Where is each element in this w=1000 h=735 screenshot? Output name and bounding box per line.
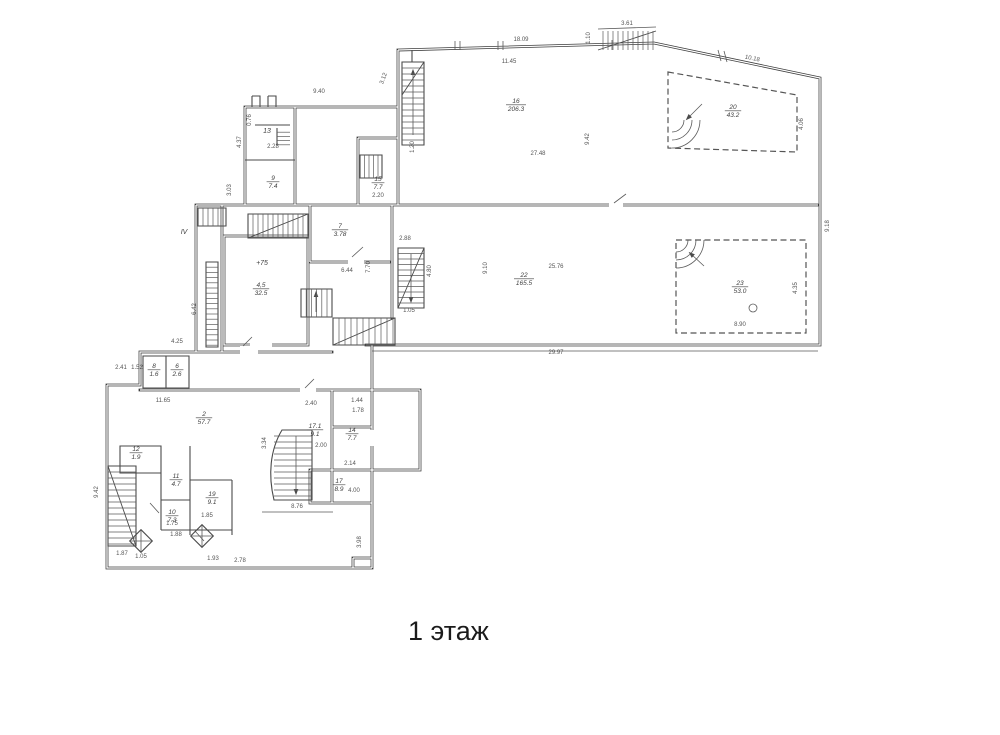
svg-text:9: 9 — [271, 175, 275, 182]
dim-label: 8.76 — [291, 504, 303, 510]
svg-text:10: 10 — [168, 509, 176, 516]
dim-label: 2.41 — [115, 365, 127, 371]
dim-label: 3.03 — [227, 184, 233, 196]
svg-text:8.9: 8.9 — [334, 486, 343, 493]
mark-labels-layer: IV13+75 — [181, 128, 271, 267]
dim-label: 4.80 — [427, 265, 433, 277]
svg-text:165.5: 165.5 — [516, 280, 533, 287]
dim-label: 9.42 — [585, 133, 591, 145]
dim-label: 2.14 — [344, 461, 356, 467]
svg-text:1.9: 1.9 — [131, 454, 140, 461]
svg-text:16: 16 — [512, 98, 520, 105]
dim-label: 4.06 — [799, 118, 805, 130]
plan-mark: 13 — [263, 128, 271, 135]
floor-plan-page: 16206.32043.222165.52353.073.784,532.597… — [0, 0, 1000, 735]
dim-label: 9.40 — [313, 89, 325, 95]
room-label: 22165.5 — [514, 272, 534, 287]
dim-label: 1.87 — [116, 551, 128, 557]
door-opening — [240, 346, 258, 358]
dim-label: 4.00 — [348, 488, 360, 494]
door-opening — [348, 256, 364, 268]
svg-text:23: 23 — [735, 280, 744, 287]
svg-text:19: 19 — [208, 491, 216, 498]
svg-text:17: 17 — [335, 478, 343, 485]
dim-label: 1.88 — [170, 532, 182, 538]
dim-label: 6.44 — [341, 268, 353, 274]
dim-label: 1.93 — [207, 556, 219, 562]
svg-text:1.6: 1.6 — [149, 371, 158, 378]
outer-walls — [107, 43, 820, 568]
svg-text:7.7: 7.7 — [347, 435, 356, 442]
dim-label: 1.05 — [135, 554, 147, 560]
dim-label: 1.10 — [586, 32, 592, 44]
svg-text:32.5: 32.5 — [255, 290, 268, 297]
plan-mark: IV — [181, 229, 189, 236]
dim-label: 2.28 — [267, 144, 279, 150]
floor-plan-svg: 16206.32043.222165.52353.073.784,532.597… — [0, 0, 1000, 735]
room-label: 62.6 — [171, 363, 184, 378]
dim-label: 1.75 — [166, 521, 178, 527]
curved-stair — [271, 430, 312, 500]
room-label: 2043.2 — [725, 104, 741, 119]
door-opening — [609, 198, 623, 212]
svg-text:12: 12 — [132, 446, 140, 453]
svg-text:17.1: 17.1 — [309, 423, 322, 430]
dim-label: 9.18 — [825, 220, 831, 232]
svg-text:6: 6 — [175, 363, 179, 370]
dim-label: 3.12 — [379, 72, 389, 86]
dim-label: 11.65 — [156, 398, 171, 404]
room-label: 4,532.5 — [253, 282, 269, 297]
dim-label: 3.61 — [621, 21, 633, 27]
svg-text:2: 2 — [201, 411, 206, 418]
svg-text:206.3: 206.3 — [507, 106, 525, 113]
svg-text:9.1: 9.1 — [310, 431, 319, 438]
room-label: 114.7 — [170, 473, 183, 488]
svg-text:7.4: 7.4 — [268, 183, 277, 190]
svg-text:53.0: 53.0 — [734, 288, 747, 295]
entrance-shafts — [130, 525, 214, 553]
dim-label: 1.44 — [351, 398, 363, 404]
door-opening — [300, 384, 316, 396]
dim-label: 2.20 — [372, 193, 384, 199]
dim-label: 4.37 — [237, 136, 243, 148]
svg-text:7: 7 — [338, 223, 342, 230]
svg-text:9.1: 9.1 — [207, 499, 216, 506]
room-label: 257.7 — [196, 411, 212, 426]
svg-text:11: 11 — [173, 473, 180, 480]
dim-label: 1.78 — [352, 408, 364, 414]
dim-label: 27.48 — [530, 151, 546, 157]
dim-label: 1.20 — [410, 141, 416, 153]
room-label: 178.9 — [333, 478, 346, 493]
floor-title: 1 этаж — [408, 616, 489, 646]
svg-text:2.6: 2.6 — [171, 371, 181, 378]
room-label: 121.9 — [130, 446, 143, 461]
corner-arcs-icon — [676, 240, 704, 268]
dim-label: 2.78 — [234, 558, 246, 564]
room-label: 73.78 — [332, 223, 348, 238]
svg-text:15: 15 — [374, 176, 382, 183]
column-mark — [749, 304, 757, 312]
room-label: 199.1 — [206, 491, 219, 506]
dim-label: 1.85 — [201, 513, 213, 519]
dim-label: 4.25 — [171, 339, 183, 345]
plan-mark: +75 — [256, 260, 268, 267]
partition-walls — [108, 27, 818, 546]
dim-label: 7.70 — [366, 261, 372, 273]
svg-text:4,5: 4,5 — [256, 282, 265, 289]
dim-label: 1.52 — [131, 365, 143, 371]
dim-label: 11.45 — [502, 59, 517, 65]
dim-label: 2.88 — [399, 236, 411, 242]
dim-label: 1.05 — [403, 308, 415, 314]
spiral-stair-icon — [672, 104, 702, 148]
svg-text:22: 22 — [519, 272, 528, 279]
room-label: 2353.0 — [732, 280, 748, 295]
svg-text:7.7: 7.7 — [373, 184, 382, 191]
dim-label: 18.09 — [513, 37, 529, 43]
room-label: 81.6 — [148, 363, 161, 378]
svg-text:8: 8 — [152, 363, 156, 370]
svg-text:43.2: 43.2 — [727, 112, 740, 119]
dim-label: 25.76 — [548, 264, 564, 270]
room-label: 147.7 — [346, 427, 359, 442]
svg-text:14: 14 — [348, 427, 356, 434]
door-opening — [366, 430, 378, 446]
dim-label: 9.10 — [483, 262, 489, 274]
dim-label: 2.40 — [305, 401, 317, 407]
svg-text:3.78: 3.78 — [334, 231, 347, 238]
room-label: 97.4 — [267, 175, 280, 190]
dimension-labels-layer: 18.0911.453.611.1010.184.069.4227.483.12… — [94, 21, 831, 564]
dim-label: 0.76 — [247, 114, 253, 126]
svg-text:20: 20 — [728, 104, 737, 111]
dim-label: 6.42 — [192, 303, 198, 315]
dim-label: 3.98 — [357, 536, 363, 548]
dim-label: 8.90 — [734, 322, 746, 328]
room-label: 16206.3 — [506, 98, 526, 113]
dim-label: 9.42 — [94, 486, 100, 498]
dim-label: 4.35 — [793, 282, 799, 294]
svg-text:4.7: 4.7 — [171, 481, 180, 488]
svg-text:57.7: 57.7 — [198, 419, 211, 426]
dim-label: 3.34 — [262, 437, 268, 449]
dim-label: 2.00 — [315, 443, 327, 449]
dim-label: 29.97 — [548, 350, 564, 356]
